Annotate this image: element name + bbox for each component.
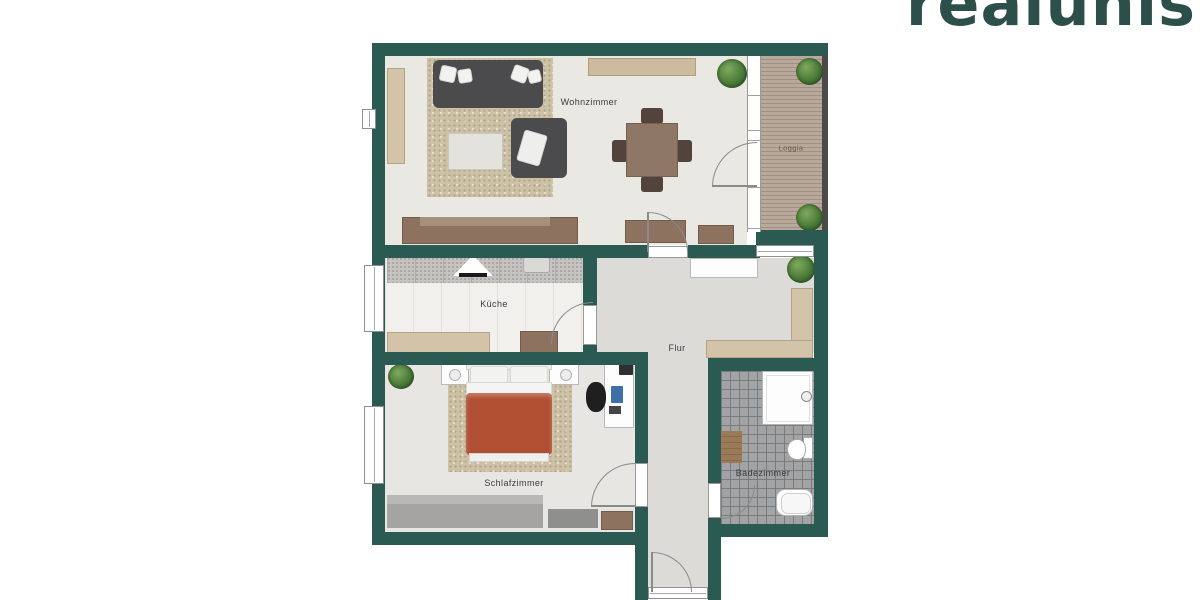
bench xyxy=(548,509,598,528)
plant xyxy=(787,255,815,283)
kitchen-sink xyxy=(523,257,550,273)
wall xyxy=(635,507,648,600)
window xyxy=(362,109,376,129)
printer-icon xyxy=(619,364,633,375)
wall xyxy=(814,244,828,537)
wall xyxy=(372,532,635,545)
wardrobe-top xyxy=(387,495,543,504)
showerhead-icon xyxy=(801,391,812,402)
dining-chair xyxy=(641,108,663,124)
loggia-railing xyxy=(822,56,828,232)
window-frame-tick xyxy=(747,187,761,188)
plant xyxy=(796,204,823,231)
dining-table xyxy=(626,123,678,177)
room-label-badezimmer: Badezimmer xyxy=(736,468,791,478)
door-frame xyxy=(635,463,648,507)
entrance-door-leaf xyxy=(651,552,653,592)
room-label-flur: Flur xyxy=(668,343,685,353)
monitor-icon xyxy=(609,406,621,414)
small-cabinet xyxy=(698,225,734,244)
plant xyxy=(717,59,747,88)
door-leaf xyxy=(591,505,635,507)
door-frame xyxy=(708,483,721,518)
bed-footboard xyxy=(469,453,549,462)
wall xyxy=(756,230,828,245)
window xyxy=(364,406,384,484)
window-frame-tick xyxy=(747,95,761,96)
coffee-table xyxy=(448,133,503,170)
room-label-schlafzimmer: Schlafzimmer xyxy=(484,478,543,488)
desk-chair xyxy=(586,382,606,412)
lamp-icon xyxy=(560,369,572,381)
door-leaf xyxy=(647,212,649,252)
laptop-icon xyxy=(611,386,623,403)
hall-wardrobe-horizontal xyxy=(706,340,813,358)
plant xyxy=(388,364,414,389)
floorplan-canvas: realunis xyxy=(0,0,1200,600)
window-frame-tick xyxy=(747,228,761,229)
hall-cabinet xyxy=(690,258,758,278)
lamp-icon xyxy=(449,369,461,381)
bed-duvet xyxy=(466,393,552,455)
wall xyxy=(372,43,828,56)
wall xyxy=(708,537,721,600)
wall xyxy=(688,245,760,258)
window-frame-tick xyxy=(747,140,761,141)
room-label-kueche: Küche xyxy=(480,299,508,309)
wall xyxy=(708,358,828,371)
window-frame-tick xyxy=(747,130,761,131)
wall xyxy=(583,245,597,305)
brand-logo: realunis xyxy=(906,0,1196,35)
plant xyxy=(796,58,823,85)
kitchen-lower-counter xyxy=(387,332,490,353)
window xyxy=(364,265,384,332)
tall-cabinet xyxy=(387,68,405,164)
bath-bench xyxy=(721,431,742,463)
sofa-pillow xyxy=(457,68,473,84)
wall xyxy=(635,352,648,463)
dining-chair xyxy=(676,140,692,162)
door-leaf xyxy=(712,185,757,187)
room-label-loggia: Loggia xyxy=(779,144,804,153)
room-label-wohnzimmer: Wohnzimmer xyxy=(561,97,618,107)
dresser xyxy=(601,511,633,530)
toilet-icon xyxy=(787,439,806,460)
wall xyxy=(708,524,828,537)
sofa-pillow xyxy=(439,65,458,84)
bathtub-inner xyxy=(781,493,811,514)
window xyxy=(756,245,814,257)
wall xyxy=(708,358,721,483)
wall xyxy=(372,352,648,365)
wall-shelf xyxy=(588,58,696,76)
stove-icon xyxy=(459,273,487,277)
wall xyxy=(385,245,648,258)
dining-chair xyxy=(641,176,663,192)
sideboard-top xyxy=(420,217,550,226)
